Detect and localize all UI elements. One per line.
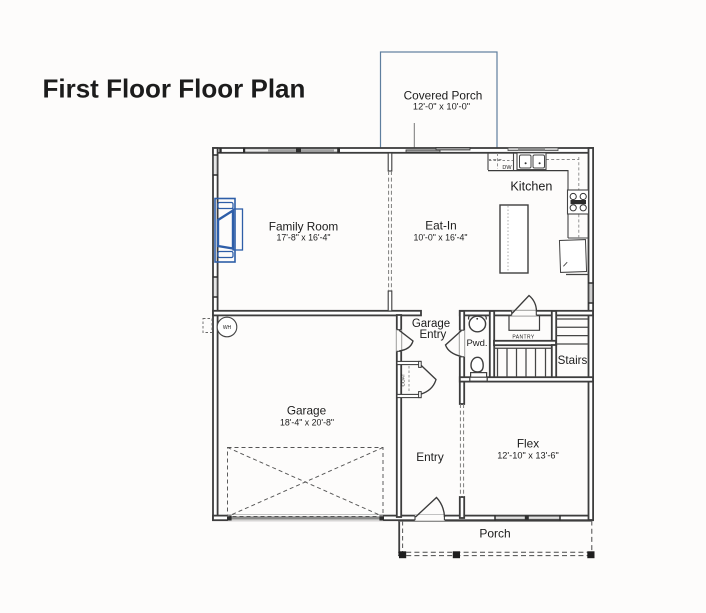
svg-text:17'-8" x 16'-4": 17'-8" x 16'-4" [276, 233, 330, 243]
svg-text:Porch: Porch [479, 527, 510, 541]
svg-text:Entry: Entry [416, 450, 444, 464]
svg-text:Kitchen: Kitchen [510, 180, 552, 194]
svg-text:Family Room: Family Room [269, 220, 339, 234]
svg-text:18'-4" x 20'-8": 18'-4" x 20'-8" [280, 418, 334, 428]
svg-text:Stairs: Stairs [558, 354, 588, 367]
svg-text:COAT: COAT [401, 373, 407, 386]
svg-text:Covered Porch: Covered Porch [404, 89, 483, 103]
svg-text:Eat-In: Eat-In [425, 219, 456, 233]
svg-text:Entry: Entry [419, 329, 446, 341]
svg-text:Flex: Flex [517, 437, 539, 451]
svg-text:DW: DW [502, 165, 512, 171]
svg-text:12'-0" x 10'-0": 12'-0" x 10'-0" [413, 102, 470, 112]
svg-text:Garage: Garage [287, 403, 327, 417]
svg-text:First Floor Floor Plan: First Floor Floor Plan [43, 74, 306, 104]
svg-text:WH: WH [223, 325, 232, 331]
svg-text:PANTRY: PANTRY [512, 335, 534, 341]
svg-text:12'-10" x 13'-6": 12'-10" x 13'-6" [497, 451, 559, 461]
svg-text:Pwd.: Pwd. [466, 338, 487, 349]
svg-text:10'-0" x 16'-4": 10'-0" x 16'-4" [413, 233, 467, 243]
